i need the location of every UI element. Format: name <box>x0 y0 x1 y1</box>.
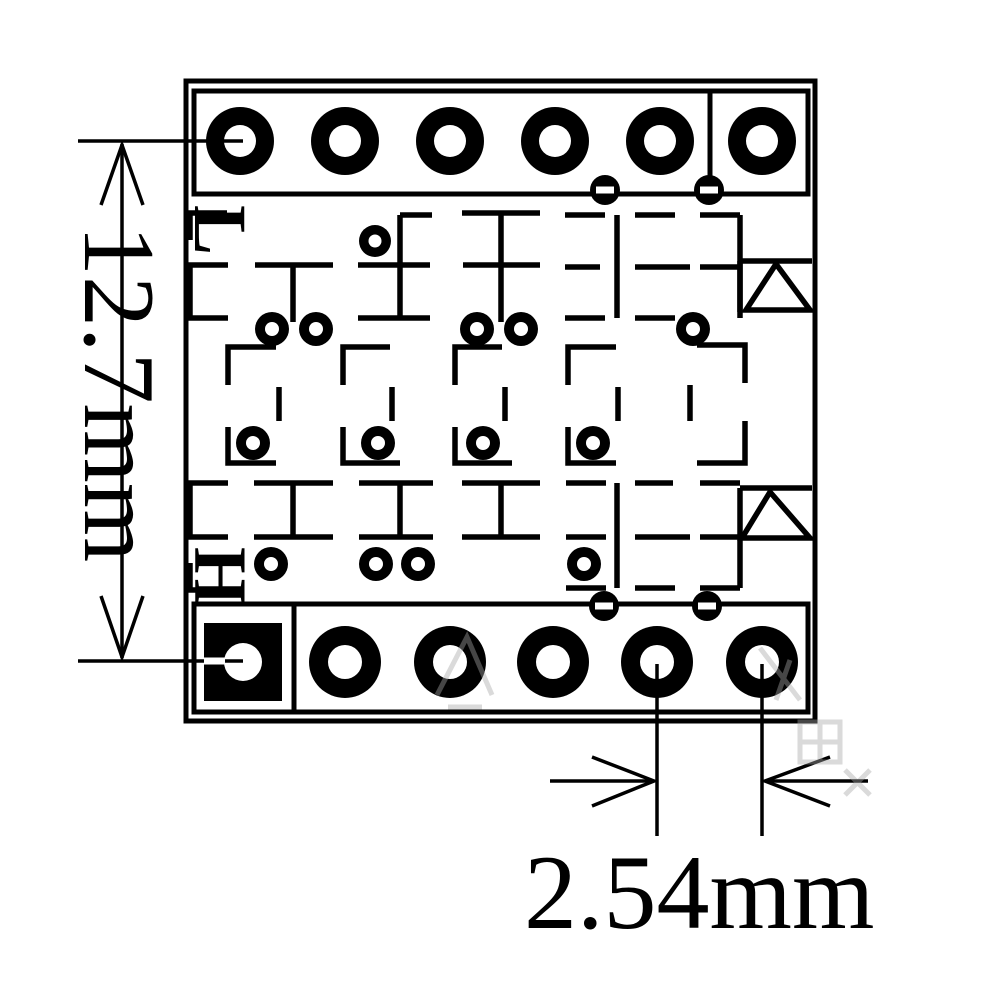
via <box>590 175 620 205</box>
dimension-value-horizontal: 2.54mm <box>524 834 874 951</box>
inner-vias <box>236 225 710 581</box>
via <box>359 225 391 257</box>
footprint-outline <box>565 215 690 318</box>
via <box>676 312 710 346</box>
through-hole-pad <box>416 107 484 175</box>
via <box>401 547 435 581</box>
triangle-icon <box>746 264 810 310</box>
dimension-horizontal: 2.54mm <box>524 664 874 951</box>
via <box>576 426 610 460</box>
silkscreen-upper-row <box>190 213 740 322</box>
through-hole-pad <box>728 107 796 175</box>
via <box>361 426 395 460</box>
label-low-side: L <box>178 205 261 255</box>
through-hole-pad <box>521 107 589 175</box>
via <box>236 426 270 460</box>
resistor-outline-mirrored <box>697 345 745 463</box>
via <box>466 426 500 460</box>
via <box>567 547 601 581</box>
via <box>460 312 494 346</box>
footprint-outline <box>700 215 740 318</box>
footprint-outline <box>254 483 333 537</box>
via <box>692 591 722 621</box>
via <box>504 312 538 346</box>
footprint-outline <box>359 483 433 537</box>
triangle-icon <box>742 492 810 538</box>
via <box>589 591 619 621</box>
through-hole-pad <box>517 626 589 698</box>
pcb-drawing-canvas: 12.7mm 2.54mm L H <box>0 0 1001 1001</box>
resistor-row-dashes <box>279 385 690 421</box>
footprint-outline <box>462 213 540 322</box>
edge-vias <box>589 175 724 621</box>
via <box>694 175 724 205</box>
through-hole-pad <box>311 107 379 175</box>
label-high-side: H <box>178 547 261 605</box>
footprint-outline <box>462 483 540 537</box>
extension-line-gap <box>204 658 225 665</box>
through-hole-pad <box>309 626 381 698</box>
pcb-dimension-diagram: 12.7mm 2.54mm L H <box>0 0 1001 1001</box>
via <box>359 547 393 581</box>
via <box>299 312 333 346</box>
through-hole-pad <box>626 107 694 175</box>
watermark-stroke <box>800 722 840 762</box>
footprint-outline <box>700 483 740 588</box>
dimension-value-vertical: 12.7mm <box>62 225 175 562</box>
triangle-markers <box>740 261 812 540</box>
via <box>255 312 289 346</box>
